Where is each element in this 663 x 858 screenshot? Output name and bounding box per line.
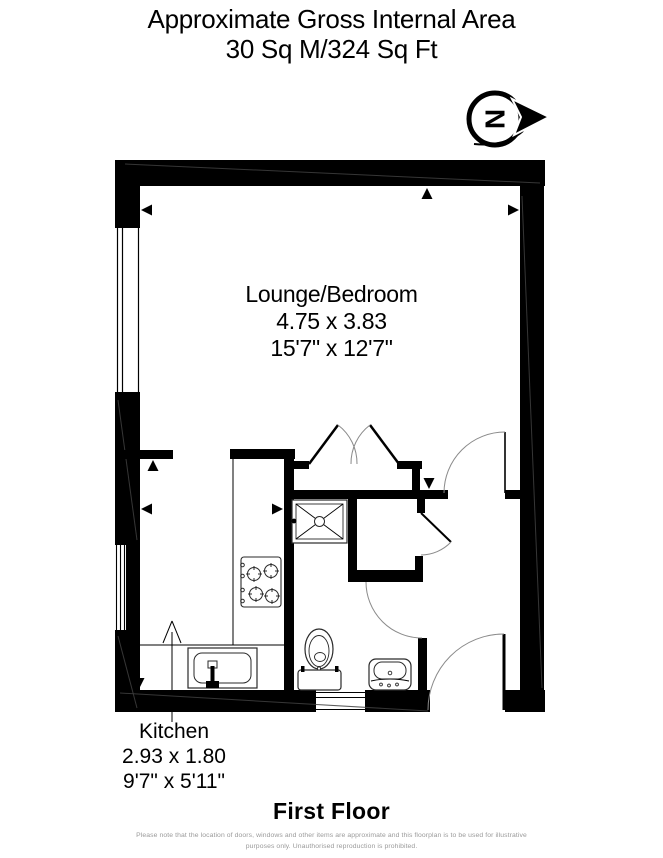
lounge-imperial-size: 15'7" x 12'7" (0, 335, 663, 362)
north-arrowhead (512, 99, 549, 135)
kitchen-imperial-size: 9'7" x 5'11" (34, 769, 314, 794)
north-arrow: N (469, 93, 549, 145)
title-line-2: 30 Sq M/324 Sq Ft (0, 34, 663, 64)
disclaimer-line-1: Please note that the location of doors, … (0, 831, 663, 842)
disclaimer: Please note that the location of doors, … (0, 831, 663, 852)
toilet (298, 629, 341, 690)
kitchen-label: Kitchen 2.93 x 1.80 9'7" x 5'11" (34, 719, 314, 794)
lounge-name: Lounge/Bedroom (0, 281, 663, 308)
hob (241, 557, 281, 607)
lounge-metric-size: 4.75 x 3.83 (0, 308, 663, 335)
door-bathroom (366, 582, 422, 638)
shower (290, 500, 347, 543)
dimension-arrows (134, 188, 520, 689)
floorplan-page: N Approximate Gross Internal Area 30 Sq … (0, 0, 663, 858)
door-lounge-hall (444, 432, 505, 493)
title-line-1: Approximate Gross Internal Area (0, 4, 663, 34)
double-doors-lounge (309, 425, 399, 464)
door-cupboard (421, 513, 451, 555)
kitchen-metric-size: 2.93 x 1.80 (34, 744, 314, 769)
basin (369, 659, 411, 690)
north-letter: N (480, 109, 511, 129)
lounge-label: Lounge/Bedroom 4.75 x 3.83 15'7" x 12'7" (0, 281, 663, 362)
page-title: Approximate Gross Internal Area 30 Sq M/… (0, 4, 663, 64)
kitchen-counter (140, 459, 284, 645)
floor-name: First Floor (0, 798, 663, 825)
kitchen-name: Kitchen (34, 719, 314, 744)
disclaimer-line-2: purposes only. Unauthorised reproduction… (0, 842, 663, 853)
kitchen-sink (188, 648, 257, 688)
